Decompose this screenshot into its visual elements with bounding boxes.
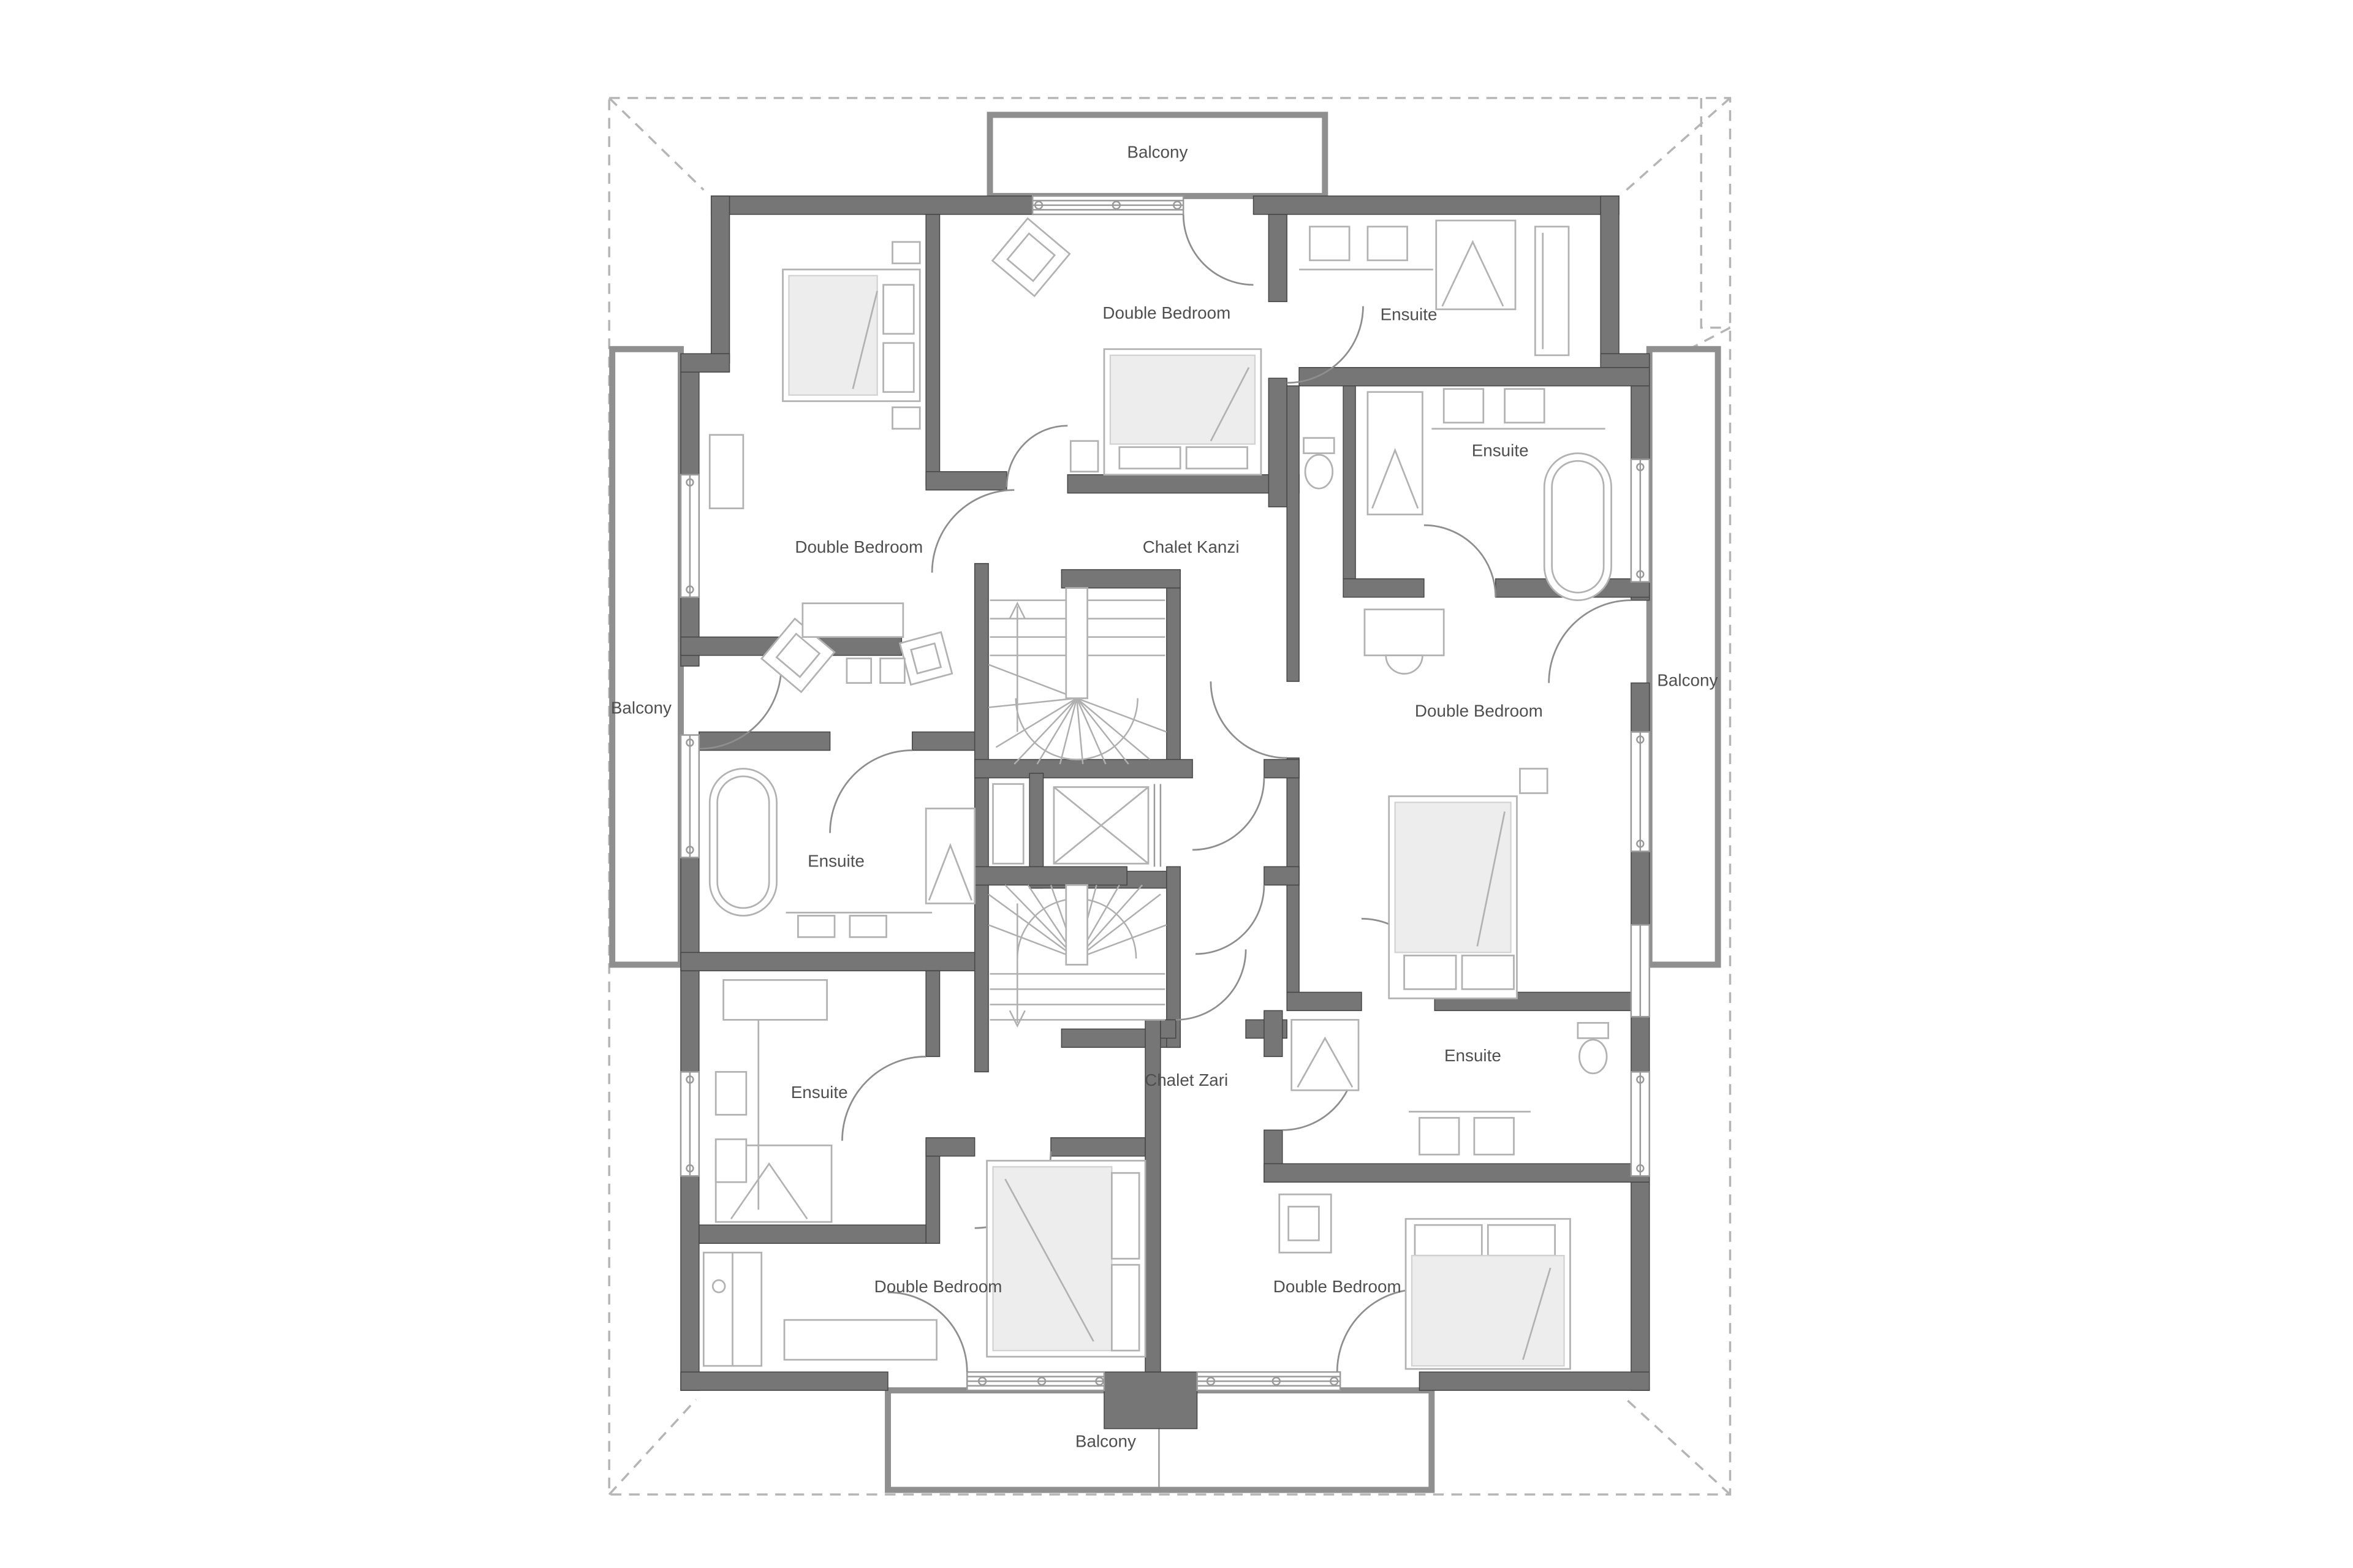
room-label-balcony-right: Balcony	[1657, 670, 1718, 689]
shower-icon	[1368, 392, 1422, 515]
room-label-ensuite-right: Ensuite	[1472, 441, 1529, 460]
room-label-chalet-kanzi: Chalet Kanzi	[1143, 537, 1240, 556]
wardrobe-icon	[703, 1252, 761, 1366]
floor-plan-svg: Balcony Double Bedroom Ensuite Ensuite D…	[0, 0, 2353, 1568]
wardrobe-icon	[1279, 1194, 1332, 1252]
room-label-balcony-left: Balcony	[611, 698, 672, 717]
room-label-chalet-zari: Chalet Zari	[1145, 1070, 1228, 1089]
room-label-ensuite-bottom-right: Ensuite	[1444, 1046, 1501, 1065]
balcony-right-deck	[1650, 349, 1718, 965]
toilet-icon	[1578, 1023, 1608, 1073]
bed-icon	[1406, 1219, 1570, 1369]
room-label-double-bedroom-top: Double Bedroom	[1102, 303, 1230, 322]
room-label-double-bedroom-left: Double Bedroom	[795, 537, 923, 556]
sideboard	[710, 435, 743, 509]
bathtub-icon	[1544, 453, 1611, 600]
shower-icon	[1292, 1020, 1358, 1090]
room-label-balcony-top: Balcony	[1127, 142, 1188, 161]
canvas-background	[0, 0, 2353, 1568]
room-label-double-bedroom-bottom-right: Double Bedroom	[1273, 1277, 1401, 1296]
bed-icon	[783, 242, 920, 429]
floor-plan-page: Balcony Double Bedroom Ensuite Ensuite D…	[0, 0, 2353, 1568]
toilet-icon	[1304, 438, 1335, 488]
room-label-ensuite-bottom-left: Ensuite	[791, 1083, 848, 1102]
bed-icon	[987, 1161, 1145, 1357]
side-table	[881, 659, 905, 683]
room-label-ensuite-top-right: Ensuite	[1381, 305, 1438, 324]
bench	[784, 1320, 937, 1360]
shower-icon	[1436, 221, 1515, 309]
shower-icon	[926, 808, 975, 903]
room-label-double-bedroom-right: Double Bedroom	[1415, 701, 1543, 720]
room-label-balcony-bottom: Balcony	[1075, 1432, 1136, 1451]
room-label-double-bedroom-bottom-left: Double Bedroom	[874, 1277, 1002, 1296]
side-table	[847, 659, 871, 683]
wardrobe-icon	[803, 604, 903, 637]
bathtub-icon	[710, 769, 776, 916]
balcony-left-deck	[612, 349, 681, 965]
room-label-ensuite-left: Ensuite	[808, 851, 865, 870]
window-top-slider	[1033, 196, 1183, 214]
